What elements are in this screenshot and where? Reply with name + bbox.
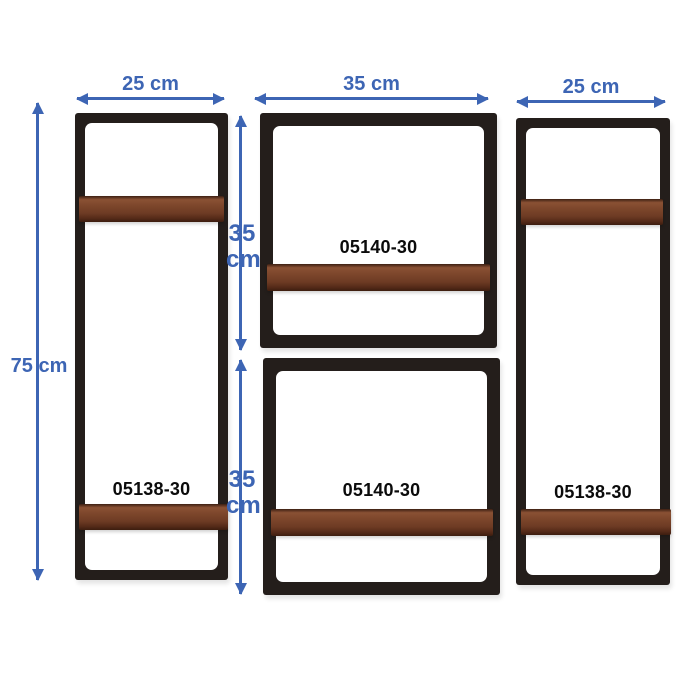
height-dim-label-total: 75 cm	[8, 355, 70, 377]
width-arrow-middle-shelf	[255, 97, 488, 100]
left-shelf-frame-opening	[85, 123, 218, 570]
right-shelf-upper-plank	[521, 199, 663, 225]
right-shelf-lower-plank	[521, 509, 671, 535]
width-dim-label-right: 25 cm	[517, 76, 665, 98]
height-arrow-total	[36, 103, 39, 580]
right-shelf-frame-opening	[526, 128, 660, 575]
height-dim-label-top-square: 35 cm	[226, 221, 258, 273]
top-square-product-label: 05140-30	[260, 237, 497, 258]
height-dim-label-bottom-square: 35 cm	[226, 467, 258, 519]
width-dim-label-middle: 35 cm	[255, 73, 488, 95]
width-dim-label-left: 25 cm	[77, 73, 224, 95]
height-dim-value-top-square: 35	[226, 221, 258, 247]
width-arrow-left-shelf	[77, 97, 224, 100]
left-shelf-lower-plank	[79, 504, 228, 530]
left-shelf-product-label: 05138-30	[75, 479, 228, 500]
width-arrow-right-shelf	[517, 100, 665, 103]
bottom-square-product-label: 05140-30	[263, 480, 500, 501]
left-shelf-upper-plank	[79, 196, 224, 222]
bottom-square-frame	[263, 358, 500, 595]
top-square-frame	[260, 113, 497, 348]
height-dim-value-bottom-square: 35	[226, 467, 258, 493]
height-dim-unit-bottom-square: cm	[226, 493, 258, 519]
shelf-set-dimension-diagram: 25 cm 35 cm 25 cm 75 cm 35 cm 35 cm 0513…	[0, 0, 677, 677]
bottom-square-frame-opening	[276, 371, 487, 582]
right-shelf-product-label: 05138-30	[516, 482, 670, 503]
top-square-plank	[267, 264, 490, 291]
height-dim-unit-top-square: cm	[226, 247, 258, 273]
bottom-square-plank	[271, 509, 493, 536]
top-square-frame-opening	[273, 126, 484, 335]
